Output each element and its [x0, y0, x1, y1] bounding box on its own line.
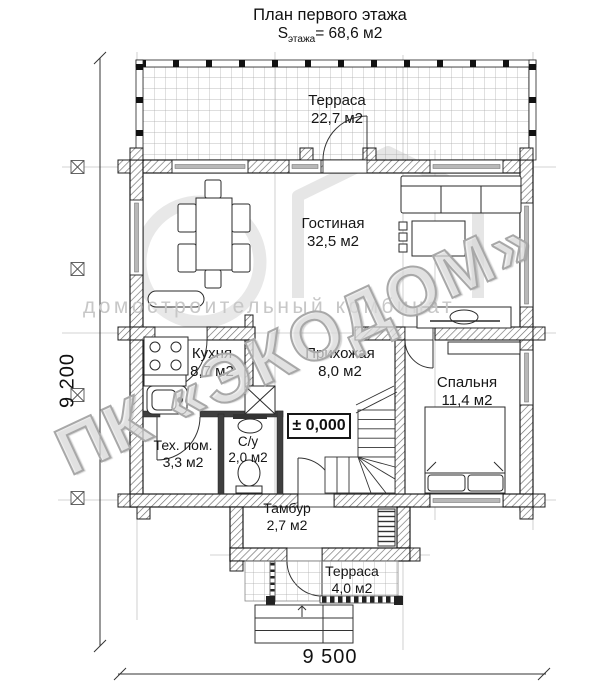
window-bedroom-bottom — [430, 494, 503, 507]
window-top-3 — [430, 160, 503, 173]
dimension-bottom: 9 500 — [302, 646, 357, 669]
terrace-bottom — [245, 561, 403, 605]
entrance-steps — [255, 605, 353, 643]
window-top-1 — [172, 160, 248, 173]
room-label-hallway: Прихожая8,0 м2 — [305, 345, 375, 380]
room-label-kitchen: Кухня8,7 м2 — [190, 345, 234, 380]
window-right-living — [520, 203, 533, 307]
vestibule-ladder — [378, 509, 395, 546]
room-label-living: Гостиная32,5 м2 — [302, 215, 365, 250]
staircase — [325, 386, 397, 493]
tv-console — [417, 307, 511, 328]
door-bedroom — [405, 327, 433, 368]
room-label-tambour: Тамбур2,7 м2 — [263, 500, 311, 533]
duct-shaft — [245, 386, 275, 414]
window-top-2 — [289, 160, 321, 173]
dining-table — [178, 180, 250, 288]
window-right-bedroom — [520, 350, 533, 405]
room-label-terrace-top: Терраса22,7 м2 — [308, 92, 366, 127]
coffee-table — [399, 221, 465, 256]
floor-plan-page: { "title": "План первого этажа", "subtit… — [0, 0, 600, 691]
column-markers — [71, 161, 84, 505]
washbasin — [233, 414, 267, 433]
dimension-left: 9 200 — [57, 341, 80, 421]
room-label-terrace-bottom: Терраса4,0 м2 — [325, 563, 379, 596]
kitchen-stove — [144, 337, 188, 386]
room-label-tech: Тех. пом.3,3 м2 — [154, 437, 213, 470]
kitchen-sink — [147, 386, 187, 414]
window-left — [130, 200, 143, 275]
elevation-mark: ± 0,000 — [287, 413, 351, 439]
room-label-bedroom: Спальня11,4 м2 — [437, 374, 497, 409]
bed — [425, 342, 520, 493]
sideboard — [148, 291, 204, 307]
room-label-bath: С/у2,0 м2 — [228, 434, 267, 466]
floor-area-subtitle: Sэтажа= 68,6 м2 — [278, 25, 383, 45]
floor-plan-drawing — [0, 0, 600, 691]
sofa — [401, 176, 521, 213]
page-title: План первого этажа — [253, 6, 407, 25]
